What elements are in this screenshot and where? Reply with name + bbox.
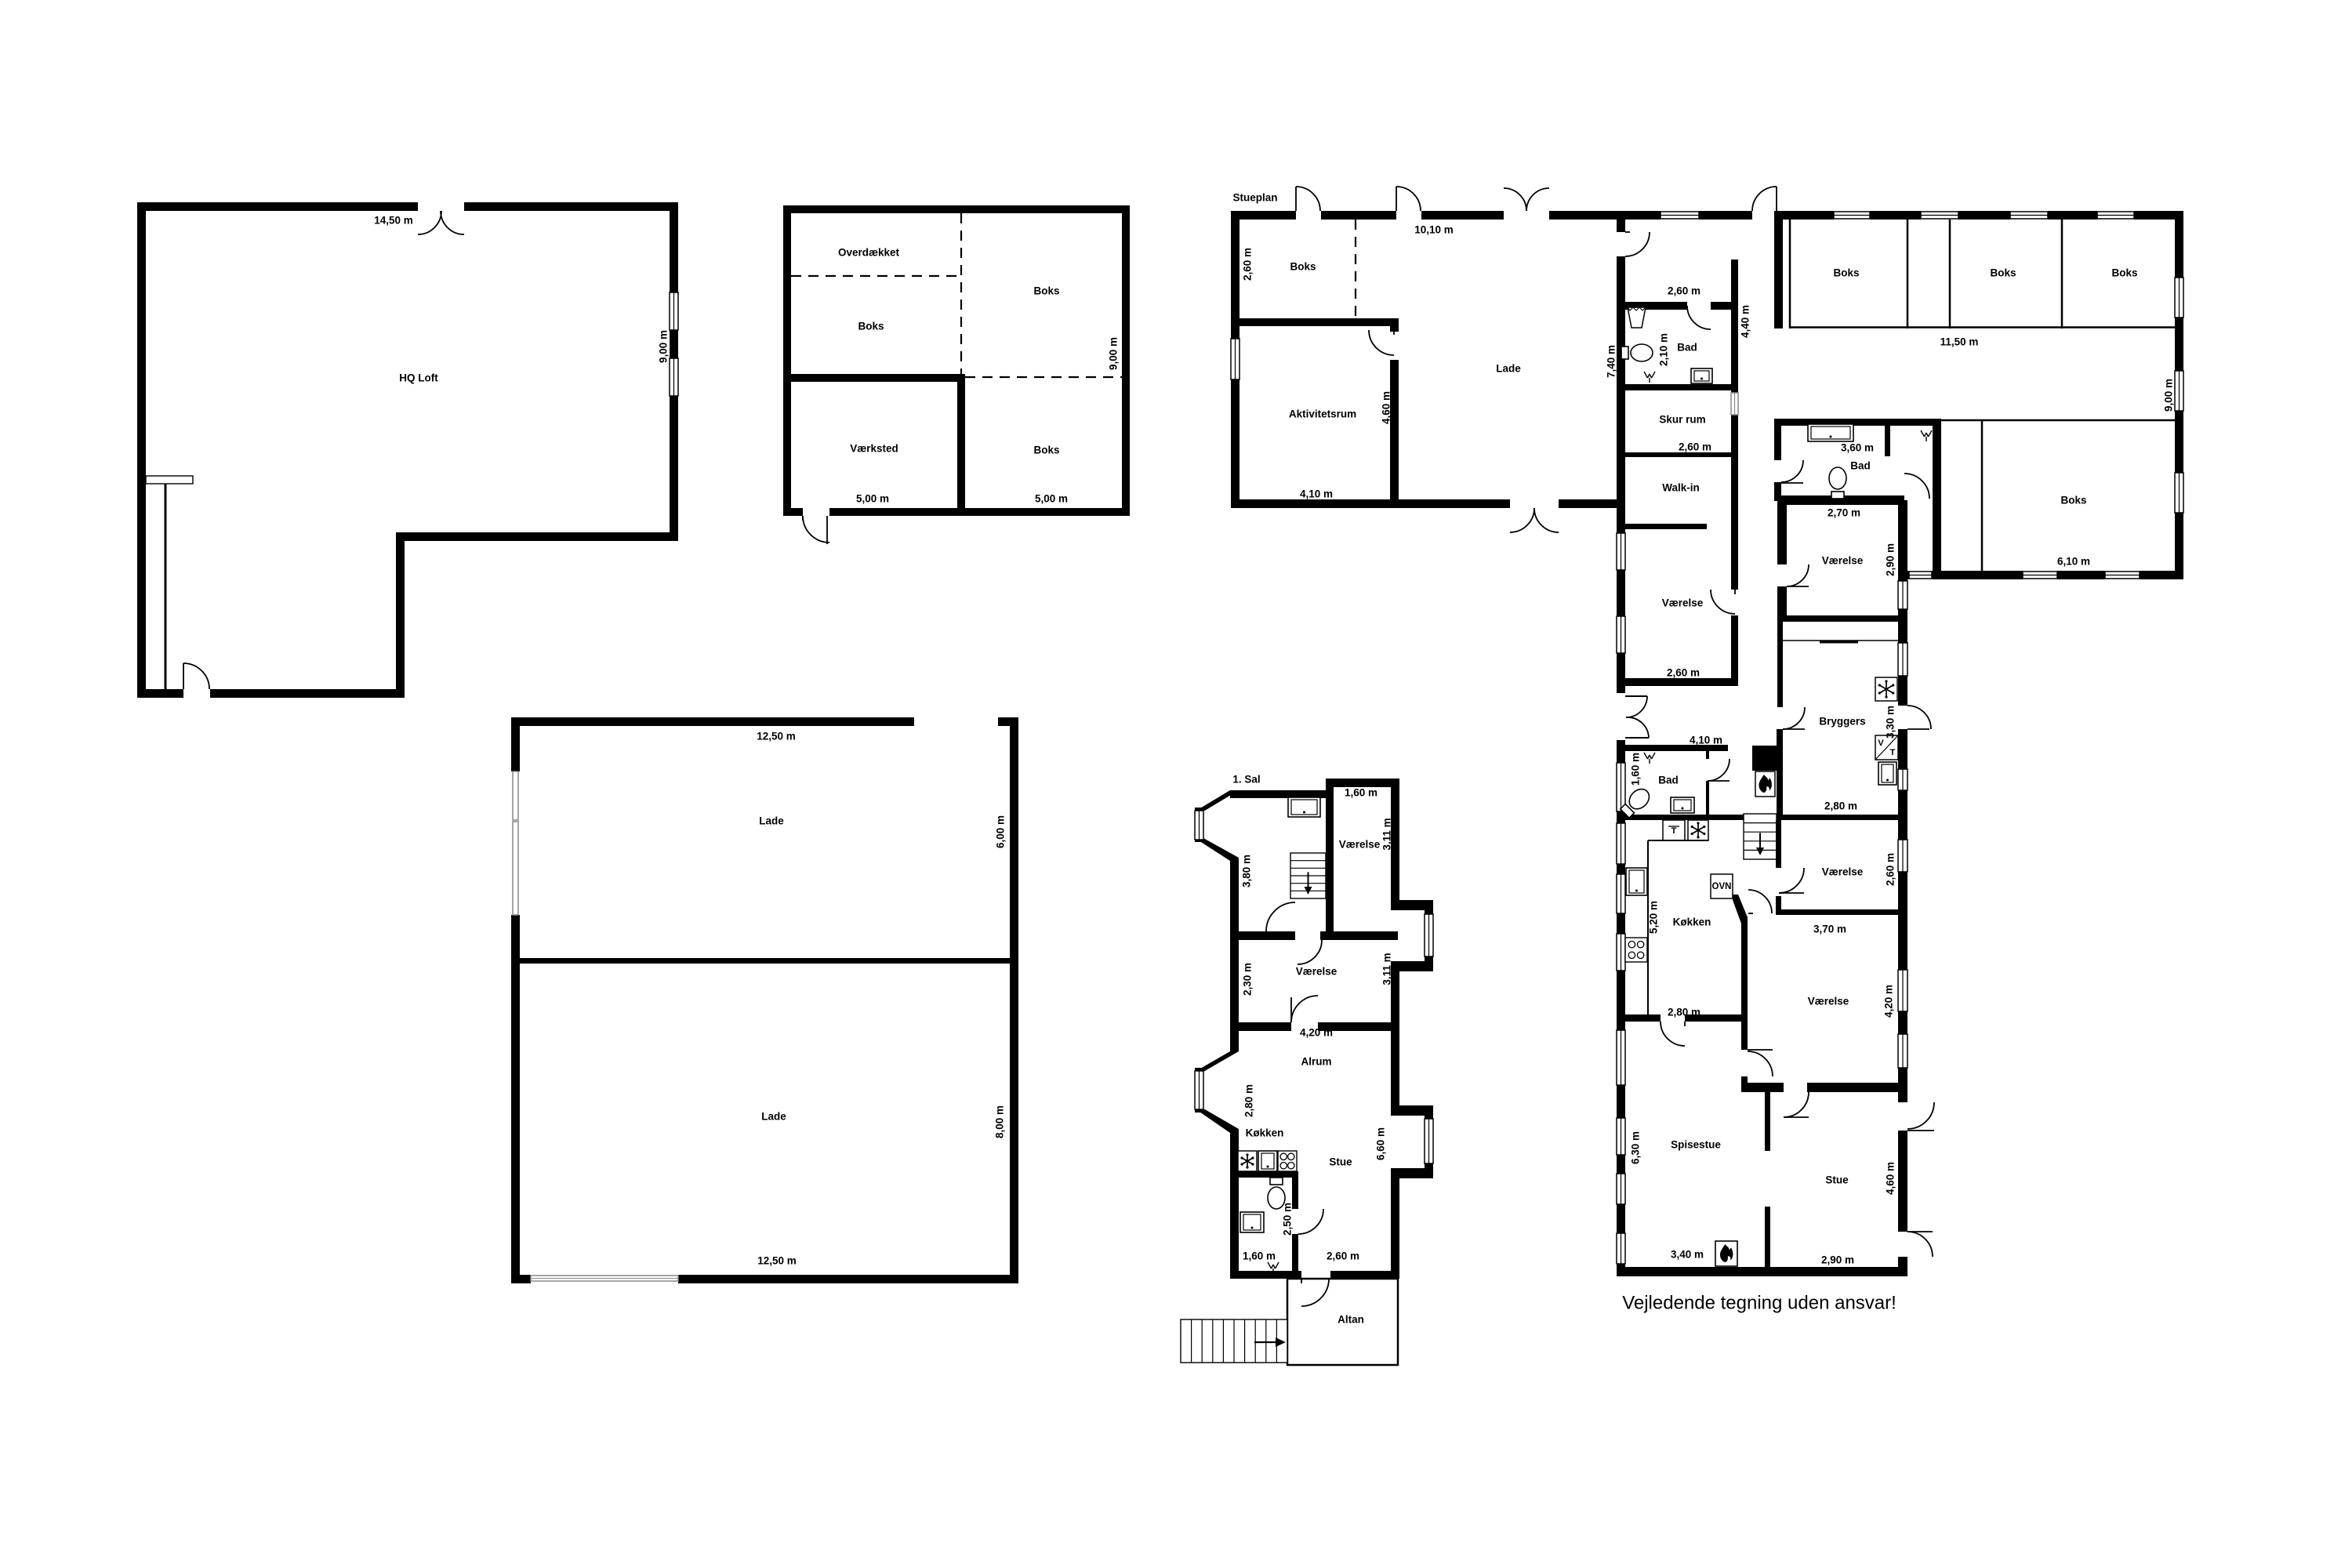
svg-text:2,50 m: 2,50 m: [1282, 1203, 1294, 1236]
svg-text:Værelse: Værelse: [1822, 555, 1864, 567]
svg-text:3,11 m: 3,11 m: [1381, 818, 1393, 850]
svg-text:6,10 m: 6,10 m: [2057, 556, 2090, 568]
svg-text:2,10 m: 2,10 m: [1658, 333, 1670, 366]
svg-text:1,60 m: 1,60 m: [1243, 1250, 1276, 1262]
svg-text:2,60 m: 2,60 m: [1668, 285, 1700, 297]
svg-text:14,50 m: 14,50 m: [374, 215, 413, 227]
svg-text:5,00 m: 5,00 m: [1035, 493, 1068, 505]
svg-text:1. Sal: 1. Sal: [1232, 774, 1260, 786]
svg-text:Skur rum: Skur rum: [1659, 414, 1705, 426]
svg-text:9,00 m: 9,00 m: [1108, 337, 1120, 370]
svg-text:11,50 m: 11,50 m: [1940, 336, 1979, 348]
svg-text:4,60 m: 4,60 m: [1885, 1162, 1896, 1195]
svg-text:4,10 m: 4,10 m: [1690, 735, 1722, 746]
svg-text:Lade: Lade: [761, 1111, 786, 1123]
svg-text:Boks: Boks: [858, 321, 884, 332]
svg-text:3,70 m: 3,70 m: [1813, 924, 1846, 935]
svg-text:Lade: Lade: [759, 815, 784, 827]
svg-text:8,00 m: 8,00 m: [994, 1105, 1006, 1138]
svg-text:Boks: Boks: [1290, 261, 1316, 273]
svg-text:Bad: Bad: [1850, 460, 1871, 472]
svg-text:T: T: [1890, 748, 1896, 757]
svg-text:T: T: [1671, 826, 1677, 836]
svg-text:2,90 m: 2,90 m: [1821, 1254, 1854, 1266]
svg-text:1,60 m: 1,60 m: [1630, 753, 1642, 786]
svg-text:OVN: OVN: [1712, 882, 1732, 891]
svg-text:3,80 m: 3,80 m: [1241, 855, 1253, 887]
svg-text:2,60 m: 2,60 m: [1327, 1250, 1359, 1262]
svg-text:3,40 m: 3,40 m: [1671, 1249, 1704, 1261]
svg-text:9,00 m: 9,00 m: [658, 330, 670, 363]
svg-text:4,10 m: 4,10 m: [1300, 488, 1333, 500]
svg-text:Køkken: Køkken: [1673, 916, 1711, 928]
svg-text:Spisestue: Spisestue: [1671, 1139, 1721, 1151]
svg-text:2,80 m: 2,80 m: [1243, 1084, 1255, 1117]
svg-text:Alrum: Alrum: [1301, 1056, 1331, 1068]
svg-text:2,70 m: 2,70 m: [1828, 507, 1860, 519]
svg-text:5,20 m: 5,20 m: [1648, 901, 1660, 934]
svg-text:Værelse: Værelse: [1662, 597, 1704, 609]
svg-text:6,30 m: 6,30 m: [1630, 1131, 1642, 1164]
svg-text:V: V: [1878, 739, 1884, 748]
svg-text:Værelse: Værelse: [1808, 996, 1849, 1007]
svg-text:Værelse: Værelse: [1296, 966, 1338, 978]
svg-text:Walk-in: Walk-in: [1662, 482, 1700, 494]
svg-text:Bad: Bad: [1658, 775, 1679, 786]
svg-text:Boks: Boks: [1033, 445, 1059, 456]
svg-text:6,00 m: 6,00 m: [995, 815, 1007, 848]
svg-text:2,60 m: 2,60 m: [1242, 248, 1254, 281]
svg-text:Køkken: Køkken: [1246, 1127, 1284, 1139]
svg-text:12,50 m: 12,50 m: [757, 731, 796, 742]
svg-text:2,60 m: 2,60 m: [1679, 441, 1711, 453]
svg-text:Værksted: Værksted: [850, 443, 898, 455]
svg-text:2,80 m: 2,80 m: [1824, 800, 1857, 812]
svg-text:Stue: Stue: [1329, 1156, 1352, 1168]
svg-text:Stueplan: Stueplan: [1232, 192, 1277, 204]
svg-text:Bryggers: Bryggers: [1819, 716, 1865, 728]
svg-text:5,00 m: 5,00 m: [856, 493, 889, 505]
svg-text:Altan: Altan: [1338, 1314, 1364, 1326]
svg-text:3,11 m: 3,11 m: [1381, 953, 1393, 985]
svg-text:Vejledende tegning uden ansvar: Vejledende tegning uden ansvar!: [1622, 1293, 1896, 1314]
svg-text:Boks: Boks: [1833, 267, 1859, 279]
svg-text:6,60 m: 6,60 m: [1375, 1127, 1387, 1160]
svg-text:1,60 m: 1,60 m: [1345, 787, 1377, 799]
svg-text:7,40 m: 7,40 m: [1606, 345, 1617, 378]
svg-text:Bad: Bad: [1677, 342, 1697, 354]
svg-text:Værelse: Værelse: [1339, 839, 1381, 851]
svg-text:4,20 m: 4,20 m: [1883, 985, 1895, 1018]
svg-text:3,60 m: 3,60 m: [1841, 442, 1874, 454]
svg-text:Værelse: Værelse: [1822, 866, 1864, 878]
svg-text:2,30 m: 2,30 m: [1242, 963, 1254, 996]
svg-text:Aktivitetsrum: Aktivitetsrum: [1289, 408, 1356, 420]
svg-text:Boks: Boks: [1033, 285, 1059, 297]
svg-text:Stue: Stue: [1825, 1174, 1849, 1186]
svg-text:10,10 m: 10,10 m: [1414, 224, 1454, 236]
svg-text:4,20 m: 4,20 m: [1300, 1027, 1333, 1039]
svg-text:2,60 m: 2,60 m: [1885, 853, 1896, 886]
svg-text:Boks: Boks: [1990, 267, 2016, 279]
svg-text:HQ Loft: HQ Loft: [399, 372, 438, 384]
svg-text:2,80 m: 2,80 m: [1668, 1007, 1700, 1018]
svg-text:Boks: Boks: [2111, 267, 2137, 279]
svg-text:2,60 m: 2,60 m: [1667, 667, 1700, 679]
svg-text:12,50 m: 12,50 m: [757, 1255, 797, 1267]
svg-text:Overdækket: Overdækket: [838, 247, 900, 259]
svg-text:Boks: Boks: [2060, 495, 2086, 506]
svg-text:9,00 m: 9,00 m: [2163, 379, 2175, 412]
svg-text:4,60 m: 4,60 m: [1381, 391, 1392, 424]
svg-text:Lade: Lade: [1496, 363, 1521, 375]
svg-text:2,90 m: 2,90 m: [1885, 543, 1896, 576]
svg-text:4,40 m: 4,40 m: [1740, 305, 1751, 338]
svg-text:3,30 m: 3,30 m: [1885, 706, 1896, 739]
